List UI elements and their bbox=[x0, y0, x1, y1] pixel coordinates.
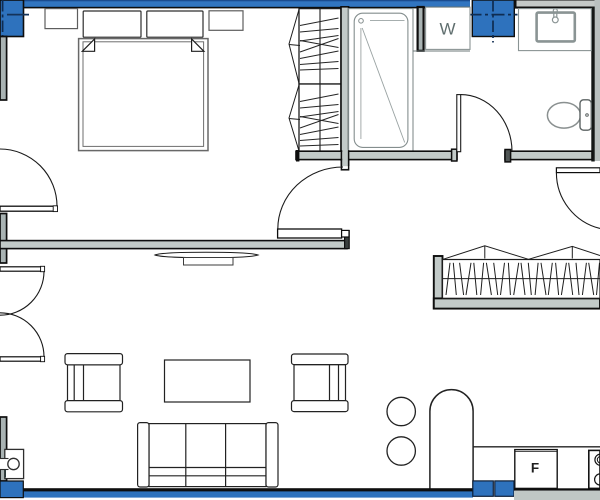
svg-text:F: F bbox=[531, 461, 539, 476]
svg-text:W: W bbox=[439, 20, 455, 39]
